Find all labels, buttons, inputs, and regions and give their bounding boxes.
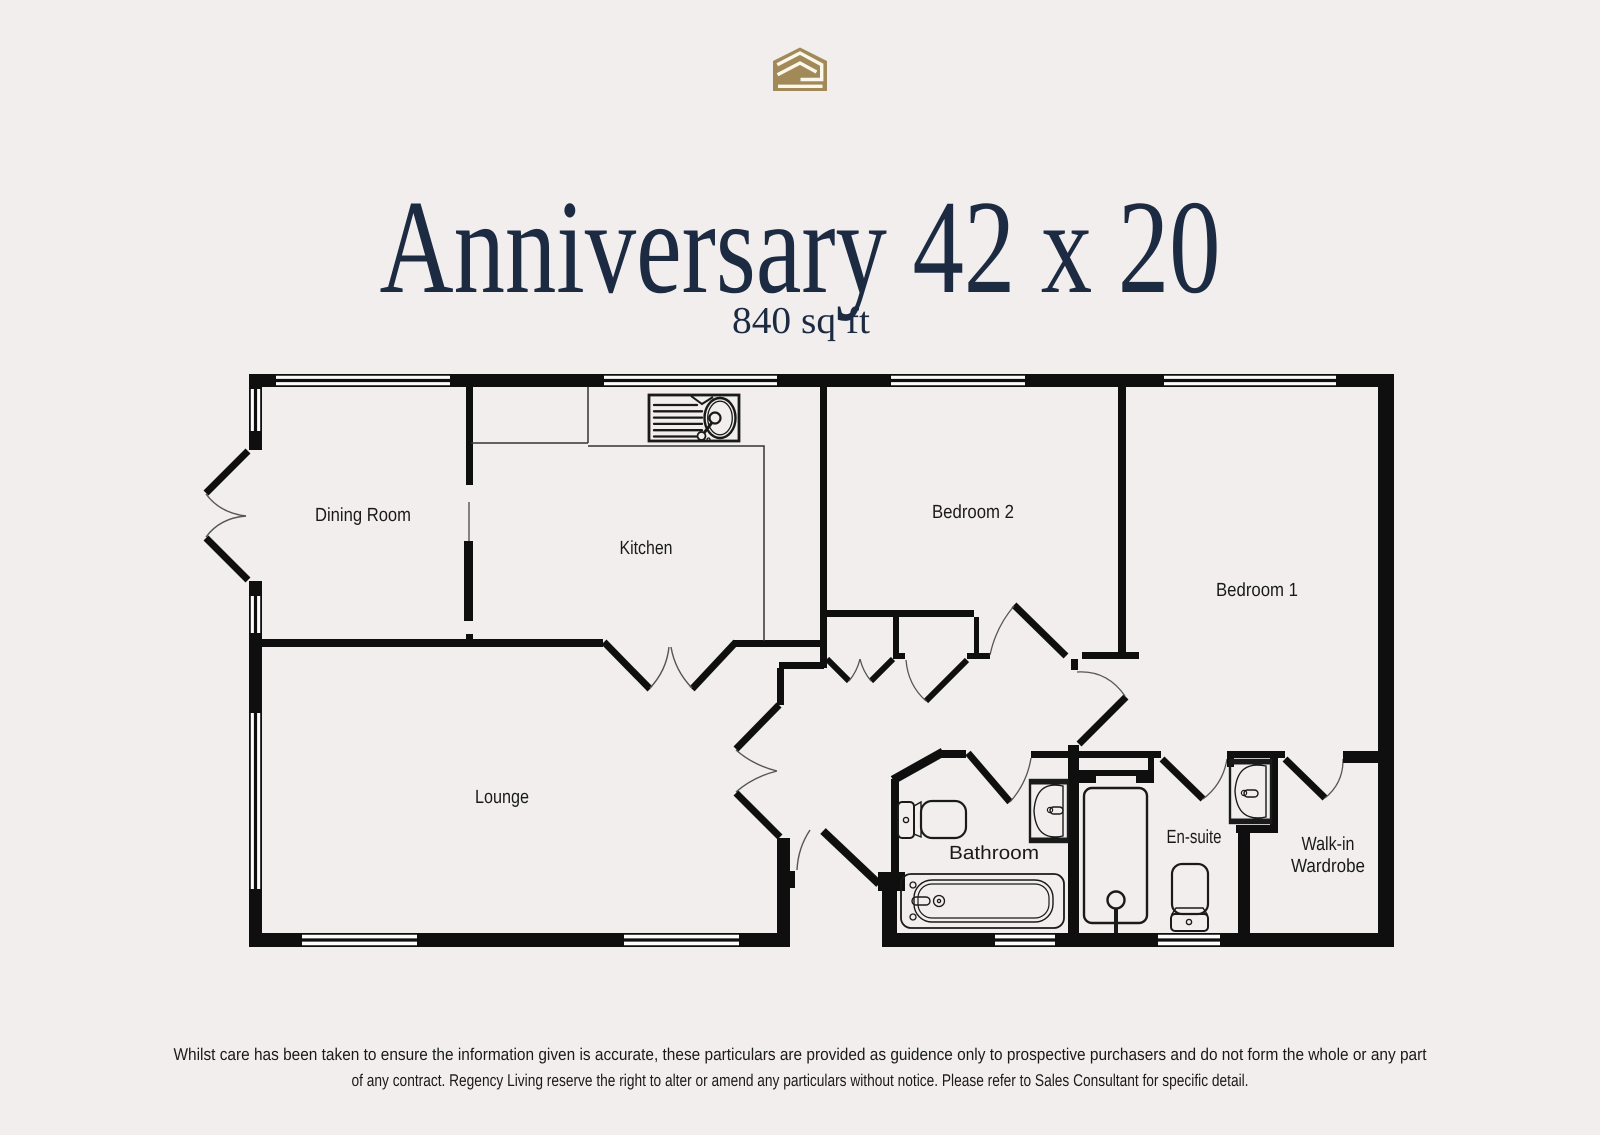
svg-text:Lounge: Lounge: [475, 787, 529, 808]
svg-text:En-suite: En-suite: [1167, 827, 1222, 848]
svg-text:of any contract. Regency Livin: of any contract. Regency Living reserve …: [352, 1071, 1249, 1090]
svg-text:Kitchen: Kitchen: [620, 538, 673, 559]
svg-text:Walk-in: Walk-in: [1302, 834, 1355, 855]
svg-text:Bathroom: Bathroom: [949, 843, 1039, 864]
svg-text:Bedroom 1: Bedroom 1: [1216, 580, 1298, 601]
svg-text:Anniversary 42 x 20: Anniversary 42 x 20: [380, 173, 1221, 321]
svg-text:Bedroom 2: Bedroom 2: [932, 502, 1014, 523]
svg-text:Whilst care has been taken to: Whilst care has been taken to ensure the…: [174, 1045, 1427, 1064]
svg-text:Dining Room: Dining Room: [315, 505, 411, 526]
svg-text:Wardrobe: Wardrobe: [1291, 856, 1365, 877]
svg-text:840 sq ft: 840 sq ft: [732, 300, 870, 342]
